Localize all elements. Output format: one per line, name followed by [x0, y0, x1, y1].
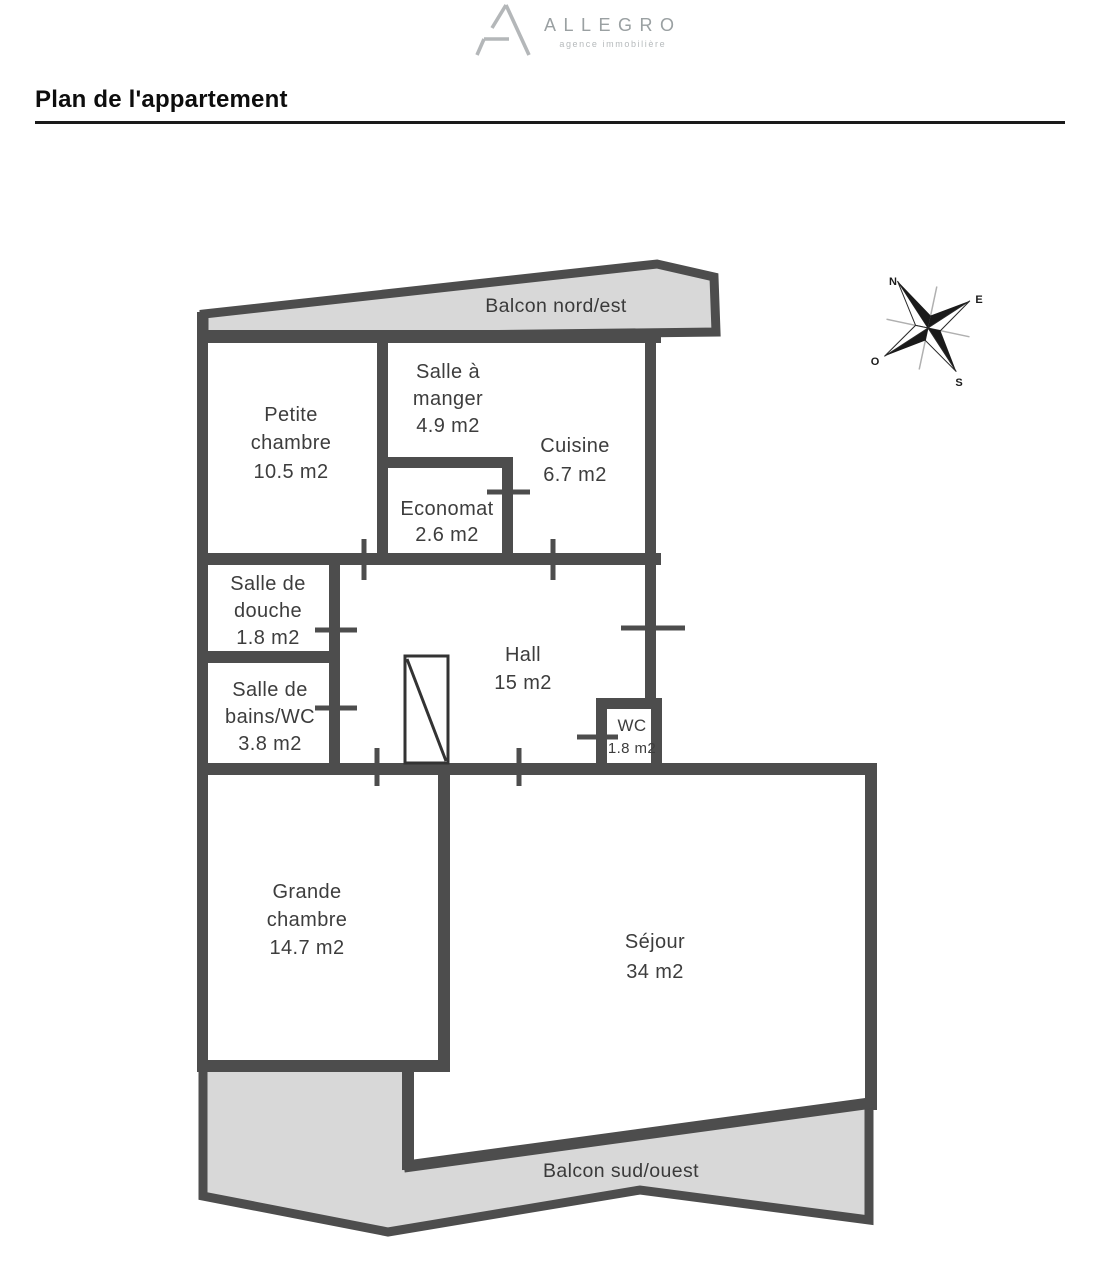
compass-north-label: N [889, 276, 897, 288]
svg-text:34 m2: 34 m2 [626, 961, 684, 983]
svg-text:chambre: chambre [251, 432, 332, 454]
entrance-door-symbol [405, 656, 448, 763]
svg-text:4.9 m2: 4.9 m2 [416, 415, 480, 437]
room-label-salle-de-bains-wc: Salle de bains/WC 3.8 m2 [225, 679, 315, 755]
svg-text:10.5 m2: 10.5 m2 [253, 461, 328, 483]
svg-text:douche: douche [234, 600, 302, 622]
room-label-grande-chambre: Grande chambre 14.7 m2 [267, 881, 348, 959]
svg-text:chambre: chambre [267, 909, 348, 931]
svg-text:Economat: Economat [400, 498, 493, 520]
compass-west-label: O [871, 356, 880, 368]
svg-text:Grande: Grande [272, 881, 341, 903]
room-label-salle-de-douche: Salle de douche 1.8 m2 [230, 573, 305, 649]
svg-text:1.8 m2: 1.8 m2 [236, 627, 300, 649]
svg-text:Salle de: Salle de [230, 573, 305, 595]
svg-text:1.8 m2: 1.8 m2 [608, 740, 656, 757]
svg-text:WC: WC [617, 716, 646, 735]
compass-east-label: E [975, 294, 982, 306]
room-label-hall: Hall 15 m2 [494, 644, 552, 694]
room-labels: Petite chambre 10.5 m2 Salle à manger 4.… [225, 361, 685, 983]
room-label-salle-a-manger: Salle à manger 4.9 m2 [413, 361, 483, 437]
svg-text:bains/WC: bains/WC [225, 706, 315, 728]
svg-text:Hall: Hall [505, 644, 541, 666]
svg-text:15 m2: 15 m2 [494, 672, 552, 694]
svg-text:manger: manger [413, 388, 483, 410]
svg-text:Salle de: Salle de [232, 679, 307, 701]
svg-text:Petite: Petite [264, 404, 318, 426]
balcony-north-label: Balcon nord/est [485, 295, 627, 317]
room-label-economat: Economat 2.6 m2 [400, 498, 493, 546]
compass-south-label: S [955, 377, 962, 389]
svg-text:6.7 m2: 6.7 m2 [543, 464, 607, 486]
compass-rose: N E S O [854, 254, 998, 400]
svg-text:2.6 m2: 2.6 m2 [415, 524, 479, 546]
svg-text:Cuisine: Cuisine [540, 435, 610, 457]
room-label-sejour: Séjour 34 m2 [625, 931, 685, 983]
balcony-south-label: Balcon sud/ouest [543, 1160, 699, 1182]
room-label-cuisine: Cuisine 6.7 m2 [540, 435, 610, 486]
balcony-north-shape [204, 264, 716, 338]
svg-text:14.7 m2: 14.7 m2 [269, 937, 344, 959]
room-label-petite-chambre: Petite chambre 10.5 m2 [251, 404, 332, 483]
svg-text:3.8 m2: 3.8 m2 [238, 733, 302, 755]
svg-text:Séjour: Séjour [625, 931, 685, 953]
floor-plan: N E S O Balcon nord/est Balcon sud/ouest… [0, 0, 1100, 1281]
svg-text:Salle à: Salle à [416, 361, 480, 383]
